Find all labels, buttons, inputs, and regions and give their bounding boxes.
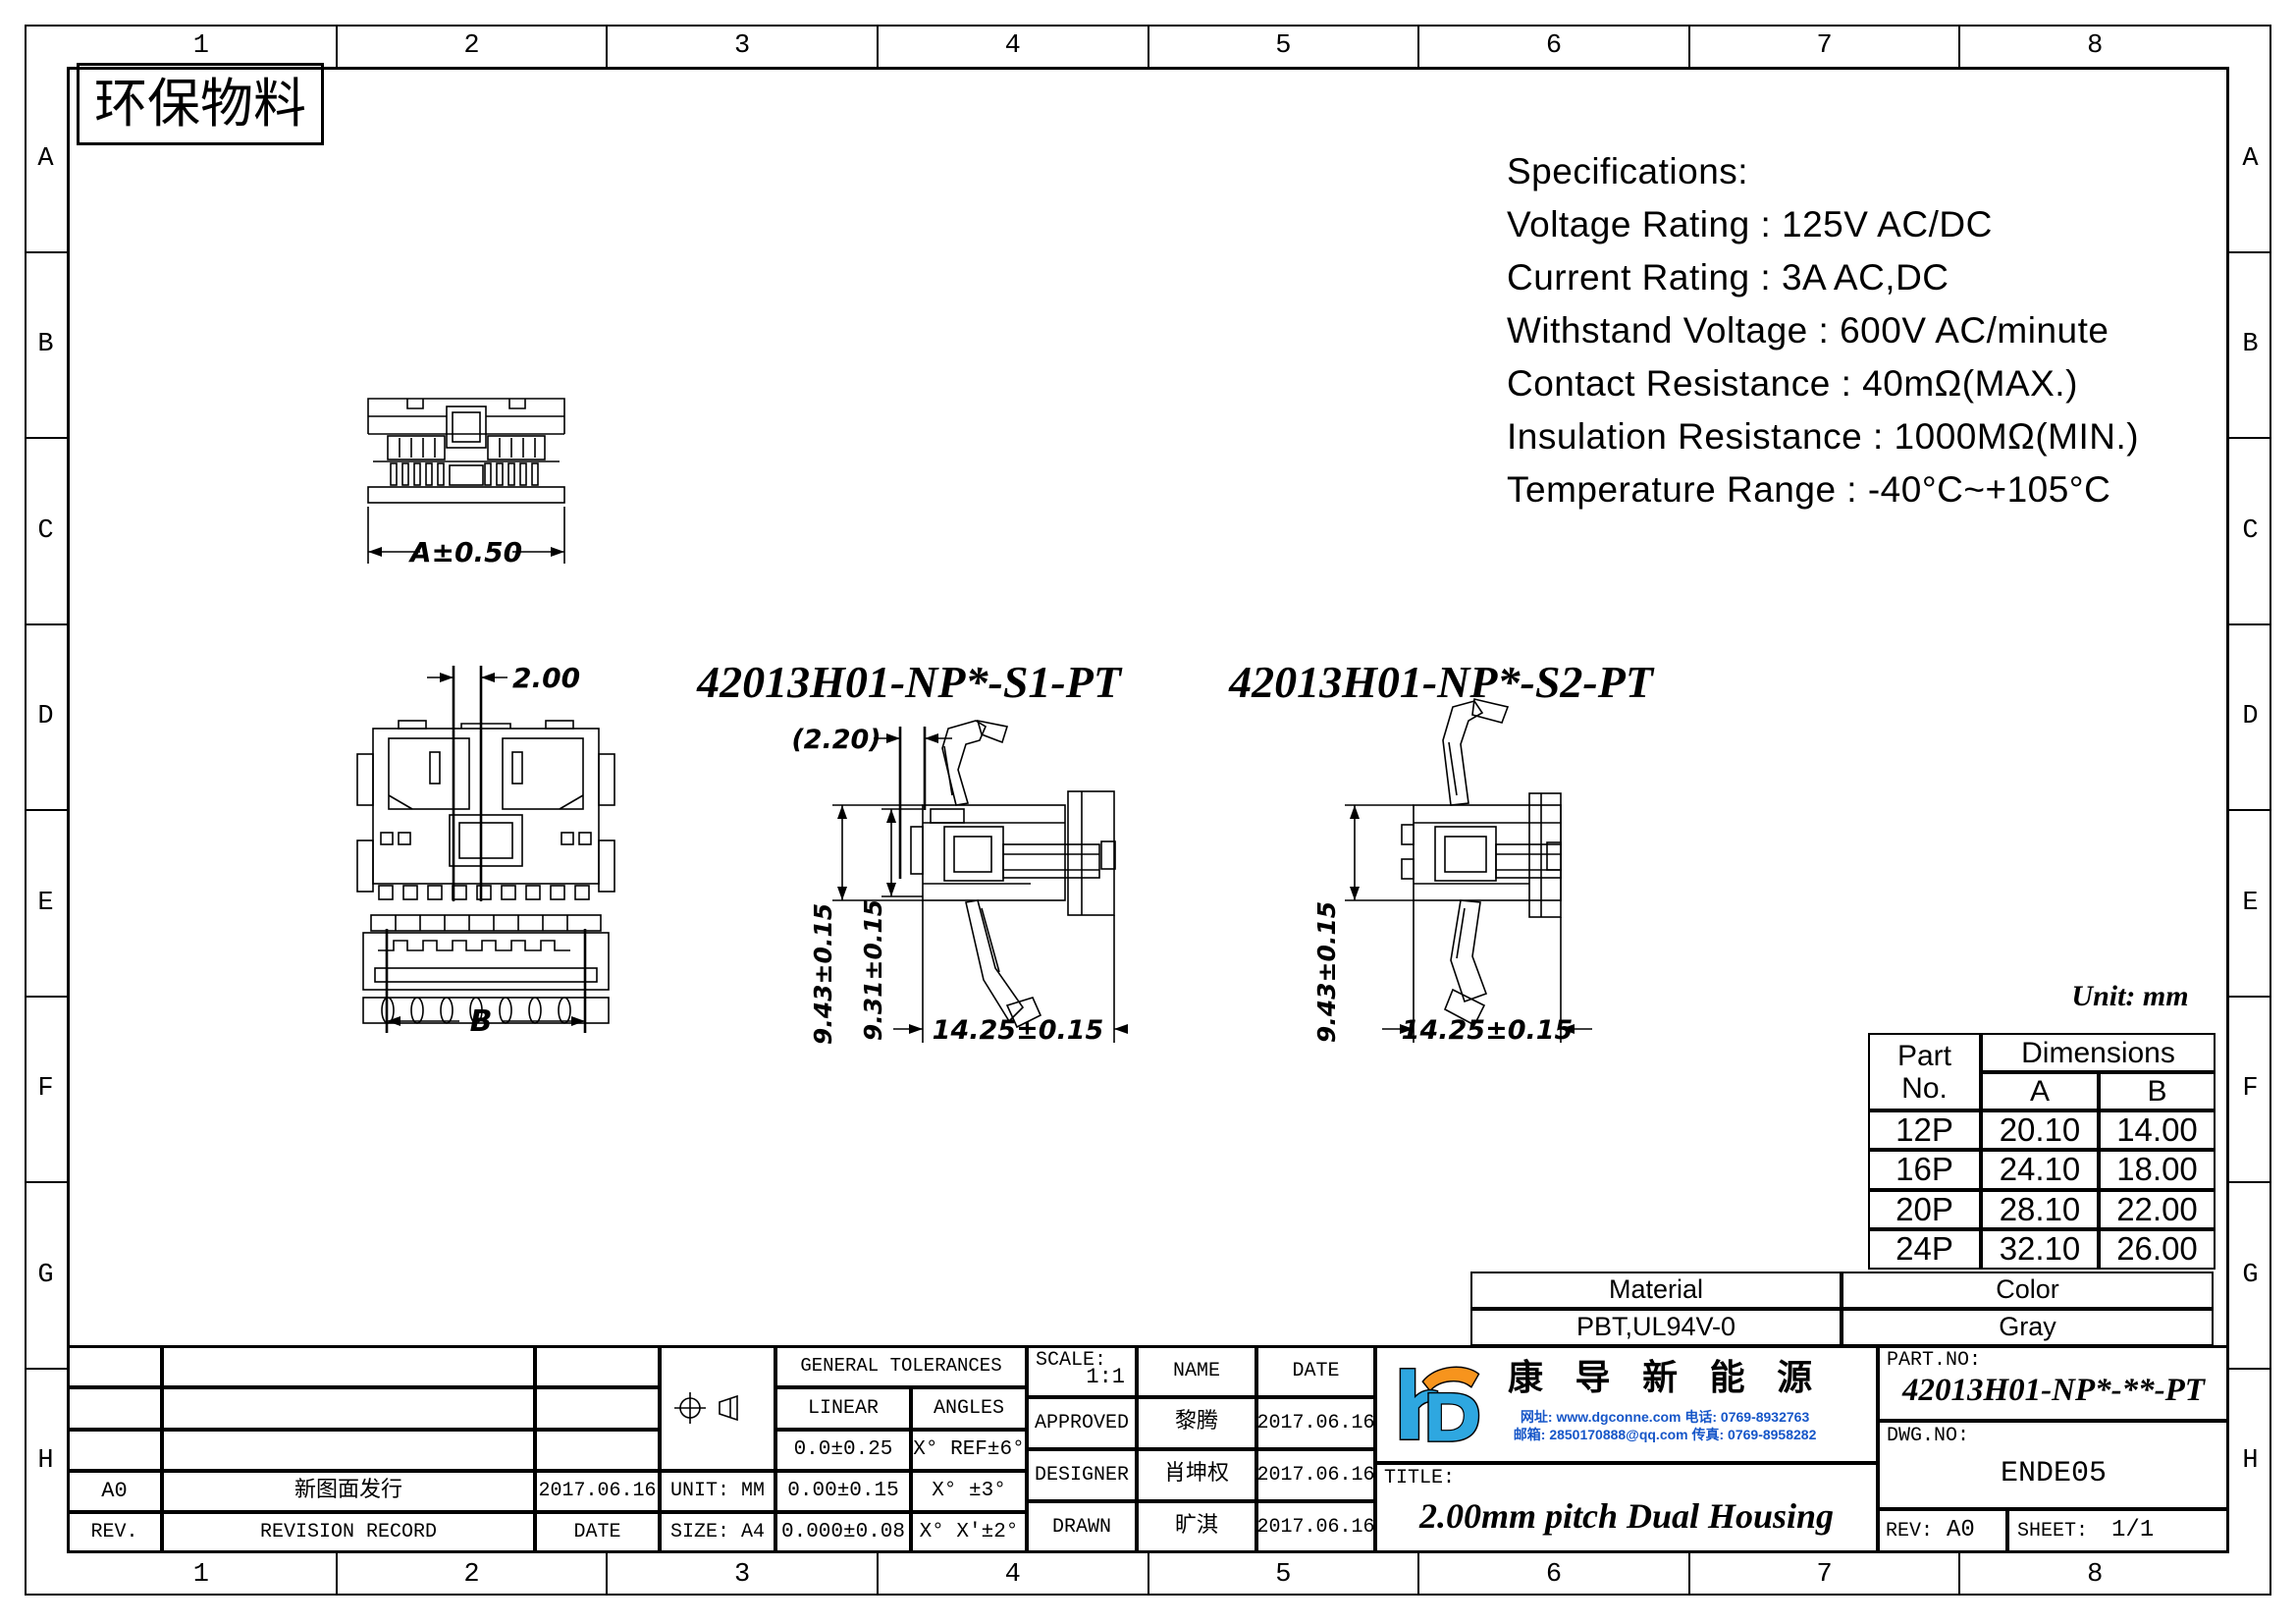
empty-cell (67, 1430, 162, 1471)
signoff-name: 肖坤权 (1137, 1449, 1256, 1501)
grid-row-label: G (2229, 1181, 2271, 1368)
material-value: PBT,UL94V-0 (1470, 1309, 1842, 1346)
size-label: SIZE: A4 (660, 1512, 775, 1553)
company-logo-icon (1387, 1357, 1490, 1451)
dim-front-width: A±0.50 (408, 536, 522, 568)
dims-col-b-header: B (2099, 1072, 2216, 1110)
signoff-role: DESIGNER (1027, 1449, 1137, 1501)
dwg-no-value: ENDE05 (2001, 1458, 2107, 1490)
grid-row-label: A (2229, 67, 2271, 251)
signoff-name: 旷淇 (1137, 1501, 1256, 1553)
grid-row-label: E (25, 809, 67, 996)
dims-row-a: 24.10 (1981, 1150, 2099, 1190)
sheet-cell: SHEET: 1/1 (2007, 1509, 2229, 1553)
dwg-no-label: DWG.NO: (1887, 1426, 1969, 1447)
dim-s2-width: 14.25±0.15 (1402, 1015, 1574, 1046)
empty-cell (535, 1430, 660, 1471)
rev-value: A0 (1947, 1518, 1975, 1543)
dims-row-part: 16P (1868, 1150, 1981, 1190)
empty-cell (67, 1387, 162, 1430)
grid-col-label: 7 (1688, 25, 1959, 67)
dims-no-word: No. (1901, 1072, 1948, 1105)
tolerance-angles: X° X'±2° (911, 1512, 1027, 1553)
spec-voltage-rating: Voltage Rating : 125V AC/DC (1507, 198, 2139, 251)
grid-col-label: 6 (1417, 25, 1688, 67)
rev-cell: REV: A0 (1878, 1509, 2007, 1553)
tolerances-angles-label: ANGLES (911, 1387, 1027, 1430)
revision-date-label: DATE (535, 1512, 660, 1553)
material-label: Material (1470, 1272, 1842, 1309)
signoff-name: 黎腾 (1137, 1397, 1256, 1449)
side-view-s1-drawing: (2.20) 9.43±0.15 9.31±0.15 14.25±0.15 (775, 677, 1129, 1060)
grid-row-label: G (25, 1181, 67, 1368)
front-view-drawing: A±0.50 (353, 385, 579, 593)
signoff-date: 2017.06.16 (1256, 1501, 1375, 1553)
grid-band-right: ABCDEFGH (2229, 67, 2271, 1553)
grid-col-label: 4 (877, 25, 1148, 67)
empty-cell (535, 1387, 660, 1430)
tolerances-title: GENERAL TOLERANCES (775, 1345, 1027, 1387)
spec-current-rating: Current Rating : 3A AC,DC (1507, 251, 2139, 304)
eco-material-label: 环保物料 (94, 75, 306, 133)
date-column-header: DATE (1256, 1345, 1375, 1397)
dim-s1-ref: (2.20) (791, 725, 881, 755)
sheet-label: SHEET: (2017, 1521, 2088, 1543)
bottom-view-drawing: 2.00 B (344, 638, 628, 1051)
dims-row-b: 18.00 (2099, 1150, 2216, 1190)
signoff-role: DRAWN (1027, 1501, 1137, 1553)
grid-band-top: 12345678 (67, 25, 2229, 67)
dwg-no-cell: DWG.NO: ENDE05 (1878, 1421, 2229, 1509)
part-no-cell: PART.NO: 42013H01-NP*-**-PT (1878, 1345, 2229, 1421)
spec-withstand-voltage: Withstand Voltage : 600V AC/minute (1507, 304, 2139, 357)
spec-insulation-resistance: Insulation Resistance : 1000MΩ(MIN.) (1507, 410, 2139, 463)
tolerance-angles: X° ±3° (911, 1471, 1027, 1512)
dims-row-b: 26.00 (2099, 1229, 2216, 1270)
revision-record-label: REVISION RECORD (162, 1512, 535, 1553)
side-view-s2-drawing: 9.43±0.15 14.25±0.15 (1306, 677, 1659, 1060)
scale-label: SCALE: (1036, 1350, 1106, 1372)
dim-bottom-width: B (470, 1004, 493, 1039)
grid-row-label: H (25, 1368, 67, 1554)
color-value: Gray (1842, 1309, 2214, 1346)
grid-row-label: C (2229, 437, 2271, 623)
spec-temperature-range: Temperature Range : -40°C~+105°C (1507, 463, 2139, 516)
grid-col-label: 3 (606, 25, 877, 67)
grid-row-label: D (25, 623, 67, 810)
grid-row-label: H (2229, 1368, 2271, 1554)
grid-row-label: F (2229, 996, 2271, 1182)
dims-col-part-header: Part No. (1868, 1033, 1981, 1110)
spec-contact-resistance: Contact Resistance : 40mΩ(MAX.) (1507, 357, 2139, 410)
company-name: 康 导 新 能 源 (1508, 1359, 1822, 1398)
company-logo-cell: 康 导 新 能 源 网址: www.dgconne.com 电话: 0769-8… (1375, 1345, 1878, 1463)
specifications-title: Specifications: (1507, 145, 2139, 198)
empty-cell (67, 1345, 162, 1387)
dim-s1-height-outer: 9.43±0.15 (809, 903, 837, 1045)
dims-row-a: 28.10 (1981, 1190, 2099, 1229)
grid-col-label: 5 (1148, 25, 1418, 67)
drawing-title-value: 2.00mm pitch Dual Housing (1419, 1497, 1834, 1537)
empty-cell (162, 1345, 535, 1387)
empty-cell (162, 1387, 535, 1430)
grid-col-label: 3 (606, 1553, 877, 1596)
grid-row-label: D (2229, 623, 2271, 810)
dim-s2-height: 9.43±0.15 (1312, 901, 1341, 1043)
dims-col-dimensions-header: Dimensions (1981, 1033, 2216, 1072)
dims-row-part: 20P (1868, 1190, 1981, 1229)
grid-band-left: ABCDEFGH (25, 67, 67, 1553)
name-column-header: NAME (1137, 1345, 1256, 1397)
part-no-value: 42013H01-NP*-**-PT (1902, 1373, 2205, 1408)
company-contact-line1: 网址: www.dgconne.com 电话: 0769-8932763 (1508, 1410, 1822, 1425)
grid-band-bottom: 12345678 (67, 1553, 2229, 1596)
drawing-title-cell: TITLE: 2.00mm pitch Dual Housing (1375, 1463, 1878, 1553)
projection-symbol-cell (660, 1345, 775, 1471)
third-angle-projection-icon (668, 1388, 767, 1428)
dims-part-word: Part (1897, 1040, 1951, 1072)
drawing-sheet: 12345678 12345678 ABCDEFGH ABCDEFGH 环保物料… (0, 0, 2296, 1624)
revision-rev-label: REV. (67, 1512, 162, 1553)
grid-row-label: E (2229, 809, 2271, 996)
grid-col-label: 2 (336, 25, 607, 67)
tolerances-linear-label: LINEAR (775, 1387, 911, 1430)
dims-row-a: 32.10 (1981, 1229, 2099, 1270)
unit-label: UNIT: MM (660, 1471, 775, 1512)
title-label: TITLE: (1384, 1468, 1455, 1489)
unit-note: Unit: mm (2042, 980, 2218, 1013)
grid-row-label: F (25, 996, 67, 1182)
dims-row-b: 22.00 (2099, 1190, 2216, 1229)
rev-label: REV: (1886, 1521, 1933, 1543)
grid-col-label: 7 (1688, 1553, 1959, 1596)
grid-col-label: 2 (336, 1553, 607, 1596)
grid-col-label: 5 (1148, 1553, 1418, 1596)
scale-cell: SCALE: 1:1 (1027, 1345, 1137, 1397)
signoff-role: APPROVED (1027, 1397, 1137, 1449)
grid-col-label: 1 (67, 1553, 336, 1596)
grid-col-label: 4 (877, 1553, 1148, 1596)
grid-col-label: 8 (1958, 25, 2229, 67)
color-label: Color (1842, 1272, 2214, 1309)
eco-material-stamp: 环保物料 (77, 63, 324, 145)
grid-row-label: B (2229, 251, 2271, 438)
signoff-date: 2017.06.16 (1256, 1449, 1375, 1501)
empty-cell (162, 1430, 535, 1471)
revision-record-value: 新图面发行 (162, 1471, 535, 1512)
dim-s1-width: 14.25±0.15 (933, 1015, 1104, 1046)
dims-row-a: 20.10 (1981, 1110, 2099, 1150)
revision-date-value: 2017.06.16 (535, 1471, 660, 1512)
dims-col-a-header: A (1981, 1072, 2099, 1110)
empty-cell (535, 1345, 660, 1387)
specifications-block: Specifications: Voltage Rating : 125V AC… (1507, 145, 2139, 516)
grid-col-label: 1 (67, 25, 336, 67)
tolerance-linear: 0.00±0.15 (775, 1471, 911, 1512)
grid-row-label: C (25, 437, 67, 623)
grid-row-label: A (25, 67, 67, 251)
signoff-date: 2017.06.16 (1256, 1397, 1375, 1449)
sheet-value: 1/1 (2111, 1518, 2154, 1543)
grid-col-label: 6 (1417, 1553, 1688, 1596)
revision-rev-value: A0 (67, 1471, 162, 1512)
tolerance-linear: 0.000±0.08 (775, 1512, 911, 1553)
grid-row-label: B (25, 251, 67, 438)
tolerance-angles: X° REF±6° (911, 1430, 1027, 1471)
dim-s1-height-inner: 9.31±0.15 (859, 899, 887, 1041)
dims-row-part: 12P (1868, 1110, 1981, 1150)
dims-row-b: 14.00 (2099, 1110, 2216, 1150)
dims-row-part: 24P (1868, 1229, 1981, 1270)
grid-col-label: 8 (1958, 1553, 2229, 1596)
part-no-label: PART.NO: (1887, 1350, 1981, 1372)
company-contact-line2: 邮箱: 2850170888@qq.com 传真: 0769-8958282 (1508, 1428, 1822, 1442)
tolerance-linear: 0.0±0.25 (775, 1430, 911, 1471)
dim-pitch: 2.00 (512, 662, 580, 694)
